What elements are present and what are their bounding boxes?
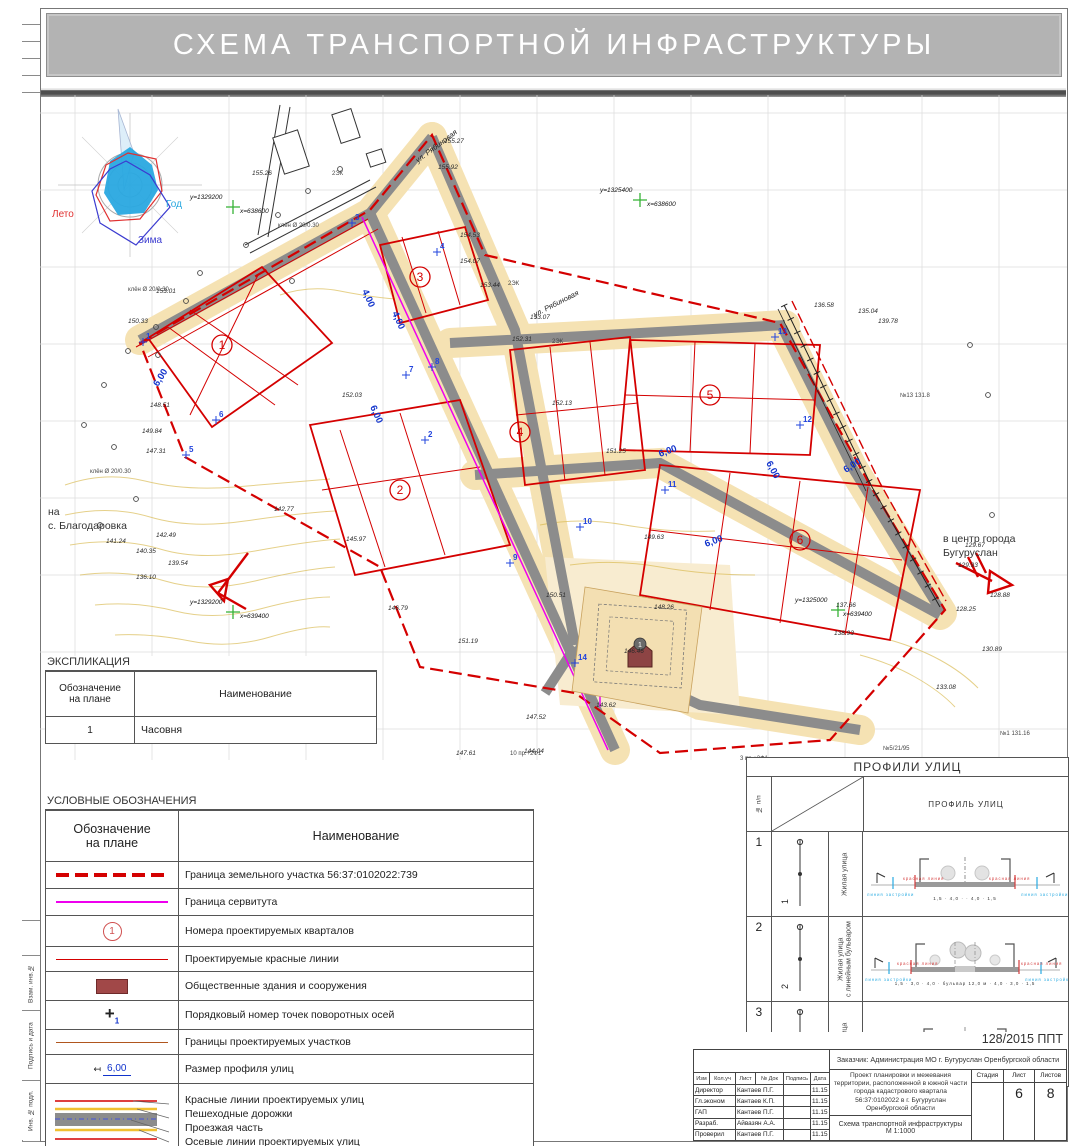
map-text-label: 6,00 [151,367,170,389]
margin-cell-podpis: Подпись и дата [22,1010,40,1081]
map-text-label: 146.46 [624,648,644,655]
map-text-label: 136.58 [814,302,834,309]
col-profile-header: ПРОФИЛЬ УЛИЦ [864,777,1068,831]
tree-mark [82,423,87,428]
map-text-label: 153.07 [530,314,550,321]
map-text-label: 135.04 [858,308,878,315]
map-text-label: 128.88 [990,592,1010,599]
street-profile-dim-symbol: 6,00 [103,1063,130,1076]
col-koluch: Кол.уч [710,1073,736,1084]
tree-mark [134,497,139,502]
margin-cell [22,920,40,956]
map-text-label: х=638600 [239,208,269,215]
margin-box [22,42,40,59]
map-text-label: 142.49 [156,532,176,539]
block-number: 3 [417,270,424,284]
legend-row: 1 Номера проектируемых кварталов [46,915,533,946]
block-number: 5 [707,388,714,402]
svg-text:красная линия: красная линия [1021,961,1062,966]
map-text-label: 147.31 [146,448,166,455]
legend-label: Проектируемые красные линии [179,947,533,971]
street-cross-section-symbol [53,1098,171,1144]
map-text-label: 146.79 [388,605,408,612]
margin-box [22,8,40,25]
map-text-label: №5/21/95 [883,745,910,752]
map-text-label: 144.04 [524,748,544,755]
explication-row-mark: 1 [46,717,135,743]
axis-point-number: 14 [578,653,587,662]
legend-row: Граница сервитута [46,888,533,915]
tree-mark [112,445,117,450]
title-block-right: Заказчик: Администрация МО г. Бугуруслан… [830,1049,1067,1141]
block-number: 4 [517,425,524,439]
map-text-label: 136.10 [136,574,156,581]
axis-point-number: 13 [778,327,787,336]
axis-point-symbol: +1 [105,1005,119,1025]
profile-drawing: линия застройки линия застройки красная … [863,917,1068,1001]
tree-mark [968,343,973,348]
col-data: Дата [811,1073,829,1084]
col-list: Лист [736,1073,756,1084]
stage-sheet-values: 6 8 [972,1083,1066,1140]
legend-label: Номера проектируемых кварталов [179,916,533,946]
svg-text:линия застройки: линия застройки [1021,892,1068,897]
street-profiles-title: ПРОФИЛИ УЛИЦ [747,758,1068,777]
map-text-label: 152.31 [512,336,532,343]
legend-label: Граница земельного участка 56:37:0102022… [179,862,533,888]
sig-signature [784,1085,811,1095]
profile-row-number: 1 [747,832,772,916]
parcel-boundary-symbol [56,873,168,877]
map-text-label: 152.13 [552,400,572,407]
legend-row: Общественные здания и сооружения [46,971,533,1000]
sig-role: Проверил [694,1130,736,1140]
legend-label: Граница сервитута [179,889,533,915]
legend-row: Границы проектируемых участков [46,1029,533,1054]
customer-cell: Заказчик: Администрация МО г. Бугуруслан… [830,1050,1066,1070]
sig-date: 11.15 [811,1130,829,1140]
legend-panel: УСЛОВНЫЕ ОБОЗНАЧЕНИЯ Обозначение на план… [45,795,534,1146]
axis-point-number: 1 [146,332,151,341]
legend-label: Размер профиля улиц [179,1055,533,1083]
legend-row: ↤6,00 Размер профиля улиц [46,1054,533,1083]
street-profile-row: 1 1 Жилая улица [747,832,1068,917]
svg-text:линия застройки: линия застройки [867,892,914,897]
svg-text:1,5 · 4,0 · · 4,0 · 1,5: 1,5 · 4,0 · · 4,0 · 1,5 [933,896,997,901]
signature-empty-row [694,1050,829,1073]
sheets-total: 8 [1035,1083,1066,1140]
tree-mark [986,393,991,398]
signature-row: Разраб. Айвазян А.А. 11.15 [694,1119,829,1130]
axis-point-number: 9 [513,553,518,562]
sig-date: 11.15 [811,1096,829,1106]
legend-label: Общественные здания и сооружения [179,972,533,1000]
map-text-label: Лето [52,209,74,220]
public-building-symbol [96,979,128,994]
margin-cell-vzam: Взам. инв.№ [22,955,40,1011]
map-text-label: х=638600 [646,201,676,208]
margin-label: Инв. № подл. [22,1081,40,1141]
signature-row: Гл.эконом Кантаев К.П. 11.15 [694,1096,829,1107]
svg-text:1,5 · 3,0 · 4,0 · бульвар 12,0: 1,5 · 3,0 · 4,0 · бульвар 12,0 м · 4,0 ·… [895,981,1036,986]
map-text-label: 4,00 [359,288,377,309]
red-line-symbol [56,959,168,960]
col-diagonal-header [772,777,864,831]
sig-date: 11.15 [811,1107,829,1117]
axis-point-number: 5 [189,445,194,454]
svg-text:красная линия: красная линия [903,876,944,881]
col-num-header: № п/п [747,777,772,831]
map-text-label: 155.92 [438,164,458,171]
stage-sheet-cell: Стадия Лист Листов 6 8 [972,1070,1066,1140]
explication-row: 1 Часовня [46,716,376,743]
legend-row: +1 Порядковый номер точек поворотных осе… [46,1000,533,1029]
map-text-label: клён Ø 20/0.30 [278,223,320,229]
tree-mark [990,513,995,518]
legend-row: Красные линии проектируемых улиц Пешеход… [46,1083,533,1146]
sig-date: 11.15 [811,1085,829,1095]
map-text-label: х=639400 [239,613,269,620]
col-podpis: Подпись [784,1073,811,1084]
parcel-borders-symbol [56,1042,168,1043]
signature-header-row: Изм Кол.уч Лист № Док Подпись Дата [694,1073,829,1085]
map-text-label: 142.77 [274,506,294,513]
map-text-label: 153.44 [480,282,500,289]
sig-date: 11.15 [811,1119,829,1129]
sig-name: Кантаев П.Г. [736,1085,784,1095]
map-text-label: 2ЭК [552,339,564,345]
map-text-label: у=1329200 [189,194,223,201]
tree-mark [290,279,295,284]
explication-panel: ЭКСПЛИКАЦИЯ Обозначение на плане Наимено… [45,656,377,744]
legend-label: Красные линии проектируемых улиц Пешеход… [179,1084,533,1146]
block-number: 1 [219,338,226,352]
drawing-title-cell: Схема транспортной инфраструктуры М 1:10… [830,1116,971,1140]
signature-table: Изм Кол.уч Лист № Док Подпись Дата Дирек… [693,1049,830,1141]
tree-mark [198,271,203,276]
map-text-label: у=1325400 [599,187,633,194]
stage-value [972,1083,1004,1140]
profile-drawing: линия застройки линия застройки красная … [863,832,1068,916]
axis-point-number: 12 [803,415,812,424]
axis-point-number: 10 [583,517,592,526]
dim-arrow-icon: ↤ [93,1064,101,1075]
svg-text:2: 2 [780,984,790,989]
tree-mark [126,349,131,354]
axis-point-number: 8 [435,357,440,366]
profile-street-name: Жилая улица [829,832,863,916]
axis-point-number: 7 [409,365,414,374]
svg-text:1: 1 [780,899,790,904]
margin-label: Взам. инв.№ [22,956,40,1011]
map-text-label: 148.26 [654,604,674,611]
map-text-label: 149.63 [644,534,664,541]
svg-text:красная линия: красная линия [897,961,938,966]
map-text-label: 141.24 [106,538,126,545]
map-text-label: 155.27 [444,138,464,145]
drawing-scale: М 1:1000 [886,1128,915,1135]
sig-signature [784,1107,811,1117]
profile-row-number: 2 [747,917,772,1001]
map-text-label: 2ЭК [332,171,344,177]
map-text-label: 153.01 [156,288,176,295]
sig-name: Кантаев П.Г. [736,1130,784,1140]
map-text-label: 152.03 [342,392,362,399]
legend-title: УСЛОВНЫЕ ОБОЗНАЧЕНИЯ [45,795,534,810]
wind-rose [58,109,202,257]
map-text-label: 155.26 [252,170,272,177]
axis-point-number: 11 [668,480,677,489]
map-text-label: Зима [138,235,163,246]
explication-title: ЭКСПЛИКАЦИЯ [45,656,377,671]
map-text-label: №1 131.16 [1000,730,1030,737]
map-text-label: №13 131.8 [900,392,930,399]
explication-col-mark-header: Обозначение на плане [46,672,135,716]
drawing-title: Схема транспортной инфраструктуры [839,1121,963,1128]
map-text-label: 145.97 [346,536,366,543]
map-text-label: на [48,506,60,518]
tree-mark [102,383,107,388]
col-dok: № Док [756,1073,784,1084]
legend-col-name-header: Наименование [179,811,533,861]
sig-name: Кантаев К.П. [736,1096,784,1106]
svg-text:красная линия: красная линия [989,876,1030,881]
profile-axis-symbol: 1 [772,832,829,916]
block-number: 2 [397,483,404,497]
map-text-label: клён Ø 20/0.30 [90,469,132,475]
margin-box [22,25,40,42]
legend-col-mark-header: Обозначение на плане [46,811,179,861]
signature-row: Директор Кантаев П.Г. 11.15 [694,1085,829,1096]
map-text-label: 129.93 [958,562,978,569]
sig-signature [784,1119,811,1129]
map-text-label: у=1329200 [189,599,223,606]
map-text-label: 154.53 [460,232,480,239]
map-text-label: 140.35 [136,548,156,555]
block-number: 6 [797,533,804,547]
axis-point-number: 2 [428,430,433,439]
servitude-line-symbol [56,901,168,903]
stage-sheet-header: Стадия Лист Листов [972,1070,1066,1083]
legend-row: Граница земельного участка 56:37:0102022… [46,861,533,888]
explication-col-name-header: Наименование [135,672,376,716]
sig-name: Кантаев П.Г. [736,1107,784,1117]
tree-mark [276,213,281,218]
map-text-label: 2ЭК [508,281,520,287]
signature-row: ГАП Кантаев П.Г. 11.15 [694,1107,829,1118]
document-number: 128/2015 ППТ [823,1032,1063,1047]
map-text-label: 6,00 [703,533,724,550]
block-number-symbol: 1 [103,922,122,941]
map-text-label: 137.66 [836,602,856,609]
margin-label: Подпись и дата [22,1011,40,1081]
street-profile-row: 2 2 Жилая улица с линейным бульваром [747,917,1068,1002]
map-text-label: 139.54 [168,560,188,567]
margin-box [22,76,40,93]
axis-point-number: 3 [355,213,360,222]
map-text-label: 150.33 [128,318,148,325]
map-text-label: у=1325000 [794,597,828,604]
sheets-label: Листов [1035,1070,1066,1082]
explication-row-name: Часовня [135,717,376,743]
map-text-label: с. Благодаровка [48,520,127,532]
legend-label: Порядковый номер точек поворотных осей [179,1001,533,1029]
map-text-label: 138.93 [834,630,854,637]
sig-signature [784,1130,811,1140]
street-profiles-header: № п/п ПРОФИЛЬ УЛИЦ [747,777,1068,832]
map-text-label: 130.89 [982,646,1002,653]
stage-label: Стадия [972,1070,1004,1082]
profile-axis-symbol: 2 [772,917,829,1001]
legend-row: Проектируемые красные линии [46,946,533,971]
map-text-label: 147.52 [526,714,546,721]
col-izm: Изм [694,1073,710,1084]
title-banner: СХЕМА ТРАНСПОРТНОЙ ИНФРАСТРУКТУРЫ [46,13,1062,77]
axis-point-number: 4 [440,242,445,251]
profile-street-name: Жилая улица с линейным бульваром [829,917,863,1001]
map-text-label: 151.19 [458,638,478,645]
legend-label: Границы проектируемых участков [179,1030,533,1054]
map-text-label: 139.78 [878,318,898,325]
map-text-label: 129.67 [965,542,985,549]
map-text-label: 6,00 [763,459,781,480]
title-block: 128/2015 ППТ Изм Кол.уч Лист № Док Подпи… [693,1032,1067,1141]
margin-cell-inv: Инв. № подл. [22,1080,40,1141]
axis-point-number: 6 [219,410,224,419]
map-text-label: х=639400 [842,611,872,618]
sheet-number: 6 [1004,1083,1036,1140]
map-text-label: 133.08 [936,684,956,691]
map-text-label: 150.51 [546,592,566,599]
map-text-label: 128.25 [956,606,976,613]
sig-role: Директор [694,1085,736,1095]
map-text-label: 147.61 [456,750,476,757]
sig-role: Гл.эконом [694,1096,736,1106]
project-cell: Проект планировки и межевания территории… [830,1070,972,1140]
map-text-label: 143.62 [596,702,616,709]
sig-signature [784,1096,811,1106]
sheet-margin-strip: Взам. инв.№ Подпись и дата Инв. № подл. [22,8,40,1140]
margin-box [22,59,40,76]
map-text-label: 149.84 [142,428,162,435]
signature-row: Проверил Кантаев П.Г. 11.15 [694,1130,829,1140]
sheet-label: Лист [1004,1070,1036,1082]
map-text-label: Год [166,199,182,210]
map-text-label: 148.51 [150,402,170,409]
sig-role: ГАП [694,1107,736,1117]
sig-role: Разраб. [694,1119,736,1129]
drawing-sheet: Взам. инв.№ Подпись и дата Инв. № подл. … [0,0,1080,1146]
sig-name: Айвазян А.А. [736,1119,784,1129]
project-description: Проект планировки и межевания территории… [830,1070,971,1116]
sheet-title: СХЕМА ТРАНСПОРТНОЙ ИНФРАСТРУКТУРЫ [173,29,935,62]
map-text-label: 154.07 [460,258,480,265]
map-text-label: 151.25 [606,448,626,455]
